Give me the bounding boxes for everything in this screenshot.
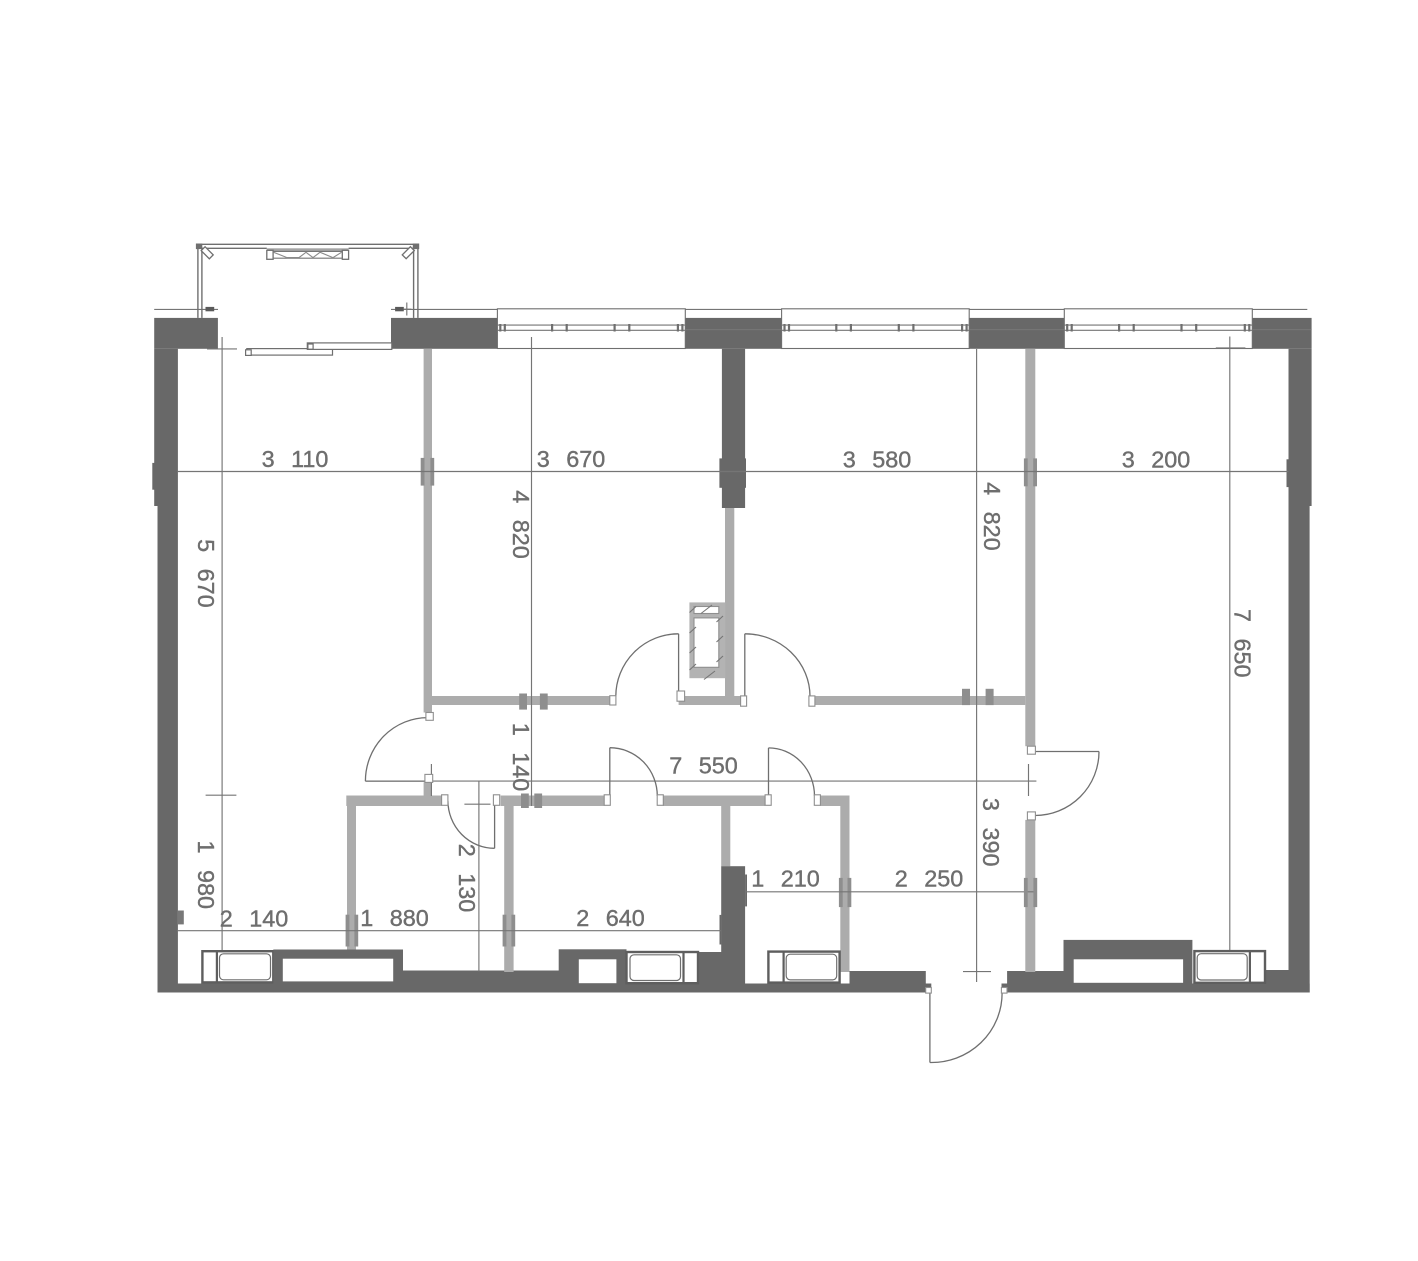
svg-text:4 820: 4 820 (508, 490, 534, 559)
svg-text:3 200: 3 200 (1122, 447, 1191, 473)
svg-text:3 670: 3 670 (537, 446, 606, 472)
svg-text:4 820: 4 820 (979, 482, 1005, 551)
svg-text:1 980: 1 980 (193, 841, 219, 910)
svg-text:7 650: 7 650 (1230, 609, 1256, 678)
svg-text:1 210: 1 210 (751, 866, 820, 892)
svg-text:7 550: 7 550 (669, 753, 738, 779)
svg-text:3 580: 3 580 (843, 447, 912, 473)
svg-text:2 140: 2 140 (220, 906, 289, 932)
svg-text:2 130: 2 130 (454, 844, 480, 913)
svg-text:2 250: 2 250 (895, 866, 964, 892)
svg-text:5 670: 5 670 (193, 539, 219, 608)
svg-text:1 880: 1 880 (360, 905, 429, 931)
svg-text:3 390: 3 390 (978, 798, 1004, 867)
svg-text:1 140: 1 140 (508, 723, 534, 792)
svg-text:2 640: 2 640 (576, 905, 645, 931)
svg-text:3 110: 3 110 (262, 446, 329, 472)
